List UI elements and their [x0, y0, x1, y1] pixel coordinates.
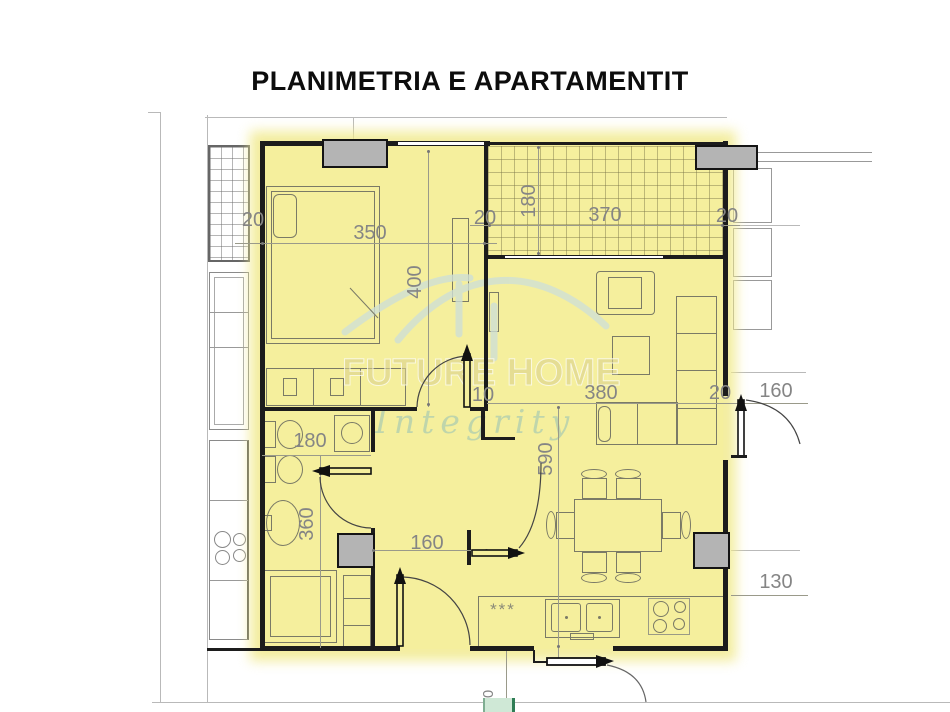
dimension-label: 10 [470, 385, 496, 405]
window-bedroom [398, 142, 484, 145]
wall-bedroom-bottom [262, 407, 417, 411]
wall-hall-jog [481, 437, 515, 440]
wall-right-upper [723, 141, 728, 396]
dim-tick [261, 242, 264, 245]
stove-burner-icon [214, 531, 231, 548]
dimension-label: 180 [519, 181, 539, 221]
wardrobe-divider [313, 369, 314, 405]
dim-tick [557, 406, 560, 409]
chair-back-icon [581, 573, 607, 583]
wall-bedroom-bottom-stub [470, 407, 488, 411]
wall-top-balcony [490, 142, 723, 145]
wardrobe-detail [283, 378, 297, 396]
stove-burner-icon [215, 550, 230, 565]
stove-burner-icon [233, 549, 246, 562]
dimension-label: 20 [472, 208, 498, 228]
shower-tray-inner [270, 576, 331, 637]
dim-tick [485, 549, 488, 552]
kitchen-counter-edge [478, 596, 479, 646]
tv-unit [489, 292, 499, 332]
neighbor-balcony-hatch [208, 145, 250, 262]
wall-bedroom-right [484, 141, 488, 407]
chair-back-icon [615, 573, 641, 583]
wall-bottom-left [207, 648, 262, 651]
dim-line [428, 150, 429, 407]
column [693, 532, 730, 569]
dimension-label: 590 [536, 439, 556, 479]
grid-line [205, 117, 727, 118]
chair-seat [616, 552, 641, 573]
dimension-label: 130 [753, 572, 799, 592]
dimension-label: 20 [240, 210, 266, 230]
neighbor-closet [733, 280, 772, 330]
neighbor-divider [210, 347, 248, 348]
neighbor-divider [210, 500, 248, 501]
kitchen-counter-edge [478, 596, 723, 597]
chair-back-icon [546, 511, 556, 539]
window-living [505, 256, 663, 258]
entry-marker [483, 698, 515, 712]
wall-bottom-a [262, 646, 400, 651]
bedside-rect [452, 218, 469, 302]
dimension-label: 160 [752, 381, 800, 401]
stove-burner-icon [233, 533, 246, 546]
dimension-label: 380 [578, 383, 624, 403]
kitchen-marks: *** [485, 600, 521, 620]
page-title: PLANIMETRIA E APARTAMENTIT [240, 66, 700, 97]
bed-pillow [273, 194, 297, 238]
door-leaf [738, 400, 744, 457]
dim-tick [483, 242, 486, 245]
chair-seat [662, 512, 681, 539]
neighbor-divider [210, 312, 248, 313]
door-arc [746, 400, 800, 444]
bidet-icon [264, 456, 276, 483]
column [695, 145, 758, 170]
floor-plan-canvas: PLANIMETRIA E APARTAMENTIT [0, 0, 950, 712]
wall-bottom-c [613, 646, 727, 651]
cooktop-burner-icon [653, 601, 669, 617]
grid-line [758, 152, 872, 153]
neighbor-closet [733, 228, 772, 277]
dimension-label: 360 [297, 504, 317, 544]
dimension-label: 160 [407, 533, 447, 553]
armchair-seat [608, 277, 642, 309]
wall-hall-living [481, 407, 485, 440]
dim-tick [537, 252, 540, 255]
dimension-label: 20 [714, 206, 740, 226]
dim-line [320, 455, 321, 648]
dim-line [731, 595, 808, 596]
dimension-label: 350 [348, 223, 392, 243]
dim-tick [372, 549, 375, 552]
dim-line [262, 455, 371, 456]
dim-tick [537, 146, 540, 149]
bidet-bowl-icon [277, 455, 303, 484]
chair-seat [616, 478, 641, 499]
bathroom-shelf [343, 575, 371, 648]
wall-hall-stub [467, 530, 471, 565]
door-arc [607, 665, 646, 702]
chair-seat [582, 552, 607, 573]
grid-line [731, 372, 806, 373]
dim-line [558, 407, 559, 663]
sink-tap [570, 633, 594, 640]
cooktop-burner-icon [673, 618, 685, 630]
dim-line [506, 651, 507, 702]
grid-line [758, 161, 872, 162]
grid-line [731, 550, 800, 551]
chair-back-icon [681, 511, 691, 539]
column [322, 139, 388, 168]
dim-tick [557, 645, 560, 648]
wall-bathroom-upper [371, 407, 375, 452]
dimension-label: 180 [288, 431, 332, 451]
grid-line [160, 112, 161, 702]
sofa-cushion-line [677, 370, 716, 371]
dim-tick [427, 150, 430, 153]
sink-drain-dot [598, 616, 601, 619]
dimension-label: 20 [706, 383, 734, 403]
column [337, 533, 375, 568]
sofa-cushion-line [637, 403, 638, 444]
dimension-label: 370 [583, 205, 627, 225]
grid-line [733, 225, 800, 226]
sofa-cushion-line [677, 333, 716, 334]
toilet-icon [264, 421, 276, 448]
chair-seat [582, 478, 607, 499]
dining-table [574, 499, 662, 552]
neighbor-divider [210, 580, 248, 581]
dim-line [487, 403, 808, 404]
dimension-label: 400 [405, 262, 425, 302]
neighbor-cabinet-inner [214, 277, 244, 425]
sofa-cushion-line [677, 408, 716, 409]
cooktop-burner-icon [674, 601, 686, 613]
shelf-divider [344, 625, 370, 626]
cooktop-burner-icon [653, 619, 667, 633]
grid-line [152, 702, 950, 703]
sink-drain-dot [565, 616, 568, 619]
shelf-divider [344, 598, 370, 599]
dim-tick [427, 403, 430, 406]
wall-bottom-b [470, 646, 534, 651]
